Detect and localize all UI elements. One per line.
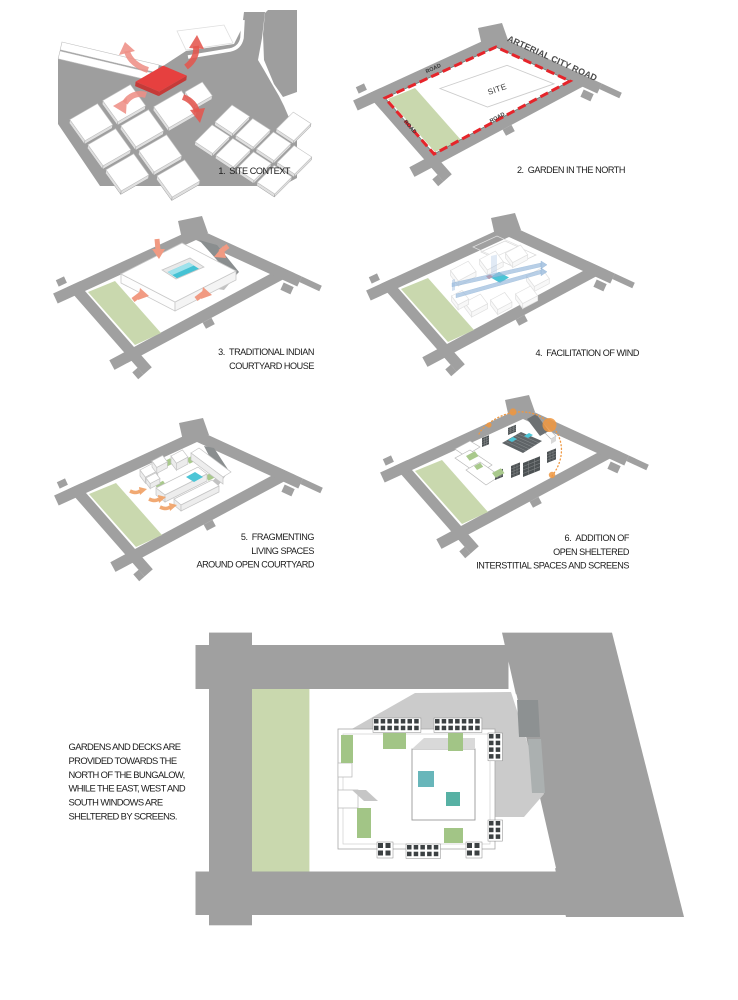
svg-text:WHILE THE EAST, WEST AND: WHILE THE EAST, WEST AND: [69, 783, 186, 794]
svg-text:COURTYARD HOUSE: COURTYARD HOUSE: [229, 361, 314, 371]
svg-text:SHELTERED BY SCREENS.: SHELTERED BY SCREENS.: [69, 811, 177, 822]
svg-text:5. FRAGMENTING: 5. FRAGMENTING: [241, 532, 314, 542]
svg-text:SOUTH WINDOWS ARE: SOUTH WINDOWS ARE: [69, 797, 163, 808]
svg-text:6. ADDITION OF: 6. ADDITION OF: [565, 533, 630, 543]
svg-text:2. GARDEN IN THE NORTH: 2. GARDEN IN THE NORTH: [517, 165, 625, 175]
svg-text:1. SITE CONTEXT: 1. SITE CONTEXT: [218, 166, 291, 176]
svg-text:LIVING SPACES: LIVING SPACES: [251, 546, 314, 556]
svg-text:GARDENS AND DECKS ARE: GARDENS AND DECKS ARE: [69, 741, 181, 752]
svg-text:3. TRADITIONAL INDIAN: 3. TRADITIONAL INDIAN: [218, 347, 314, 357]
svg-text:INTERSTITIAL SPACES AND SCREEN: INTERSTITIAL SPACES AND SCREENS: [476, 561, 629, 571]
svg-text:OPEN SHELTERED: OPEN SHELTERED: [553, 547, 630, 557]
svg-text:NORTH OF THE BUNGALOW,: NORTH OF THE BUNGALOW,: [69, 769, 185, 780]
svg-text:AROUND OPEN COURTYARD: AROUND OPEN COURTYARD: [196, 560, 314, 570]
svg-text:PROVIDED TOWARDS THE: PROVIDED TOWARDS THE: [69, 755, 177, 766]
svg-text:4. FACILITATION OF WIND: 4. FACILITATION OF WIND: [535, 348, 639, 358]
